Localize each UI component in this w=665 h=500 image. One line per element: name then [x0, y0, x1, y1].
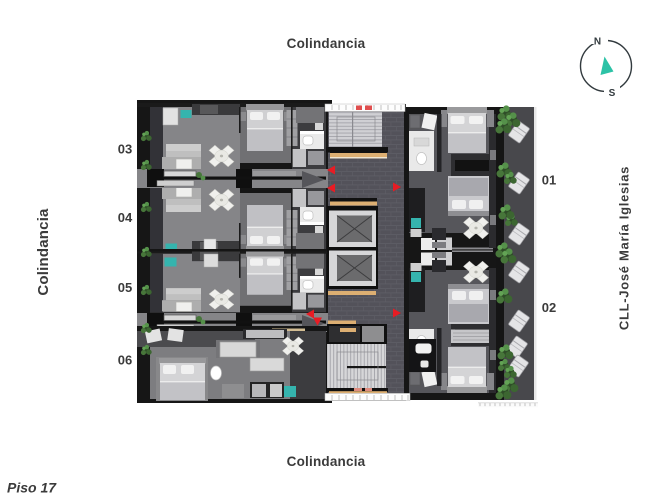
svg-text:02: 02 [542, 300, 556, 315]
svg-text:CLL-José María Iglesias: CLL-José María Iglesias [617, 166, 632, 330]
svg-text:05: 05 [118, 280, 132, 295]
svg-text:N: N [594, 37, 601, 48]
svg-text:Colindancia: Colindancia [35, 208, 52, 296]
svg-text:Colindancia: Colindancia [287, 454, 366, 469]
svg-text:01: 01 [542, 173, 556, 188]
svg-text:Colindancia: Colindancia [287, 36, 366, 51]
svg-text:04: 04 [118, 210, 133, 225]
svg-text:03: 03 [118, 142, 132, 157]
svg-text:06: 06 [118, 353, 132, 368]
svg-text:S: S [609, 88, 616, 99]
svg-text:Piso 17: Piso 17 [7, 480, 57, 496]
